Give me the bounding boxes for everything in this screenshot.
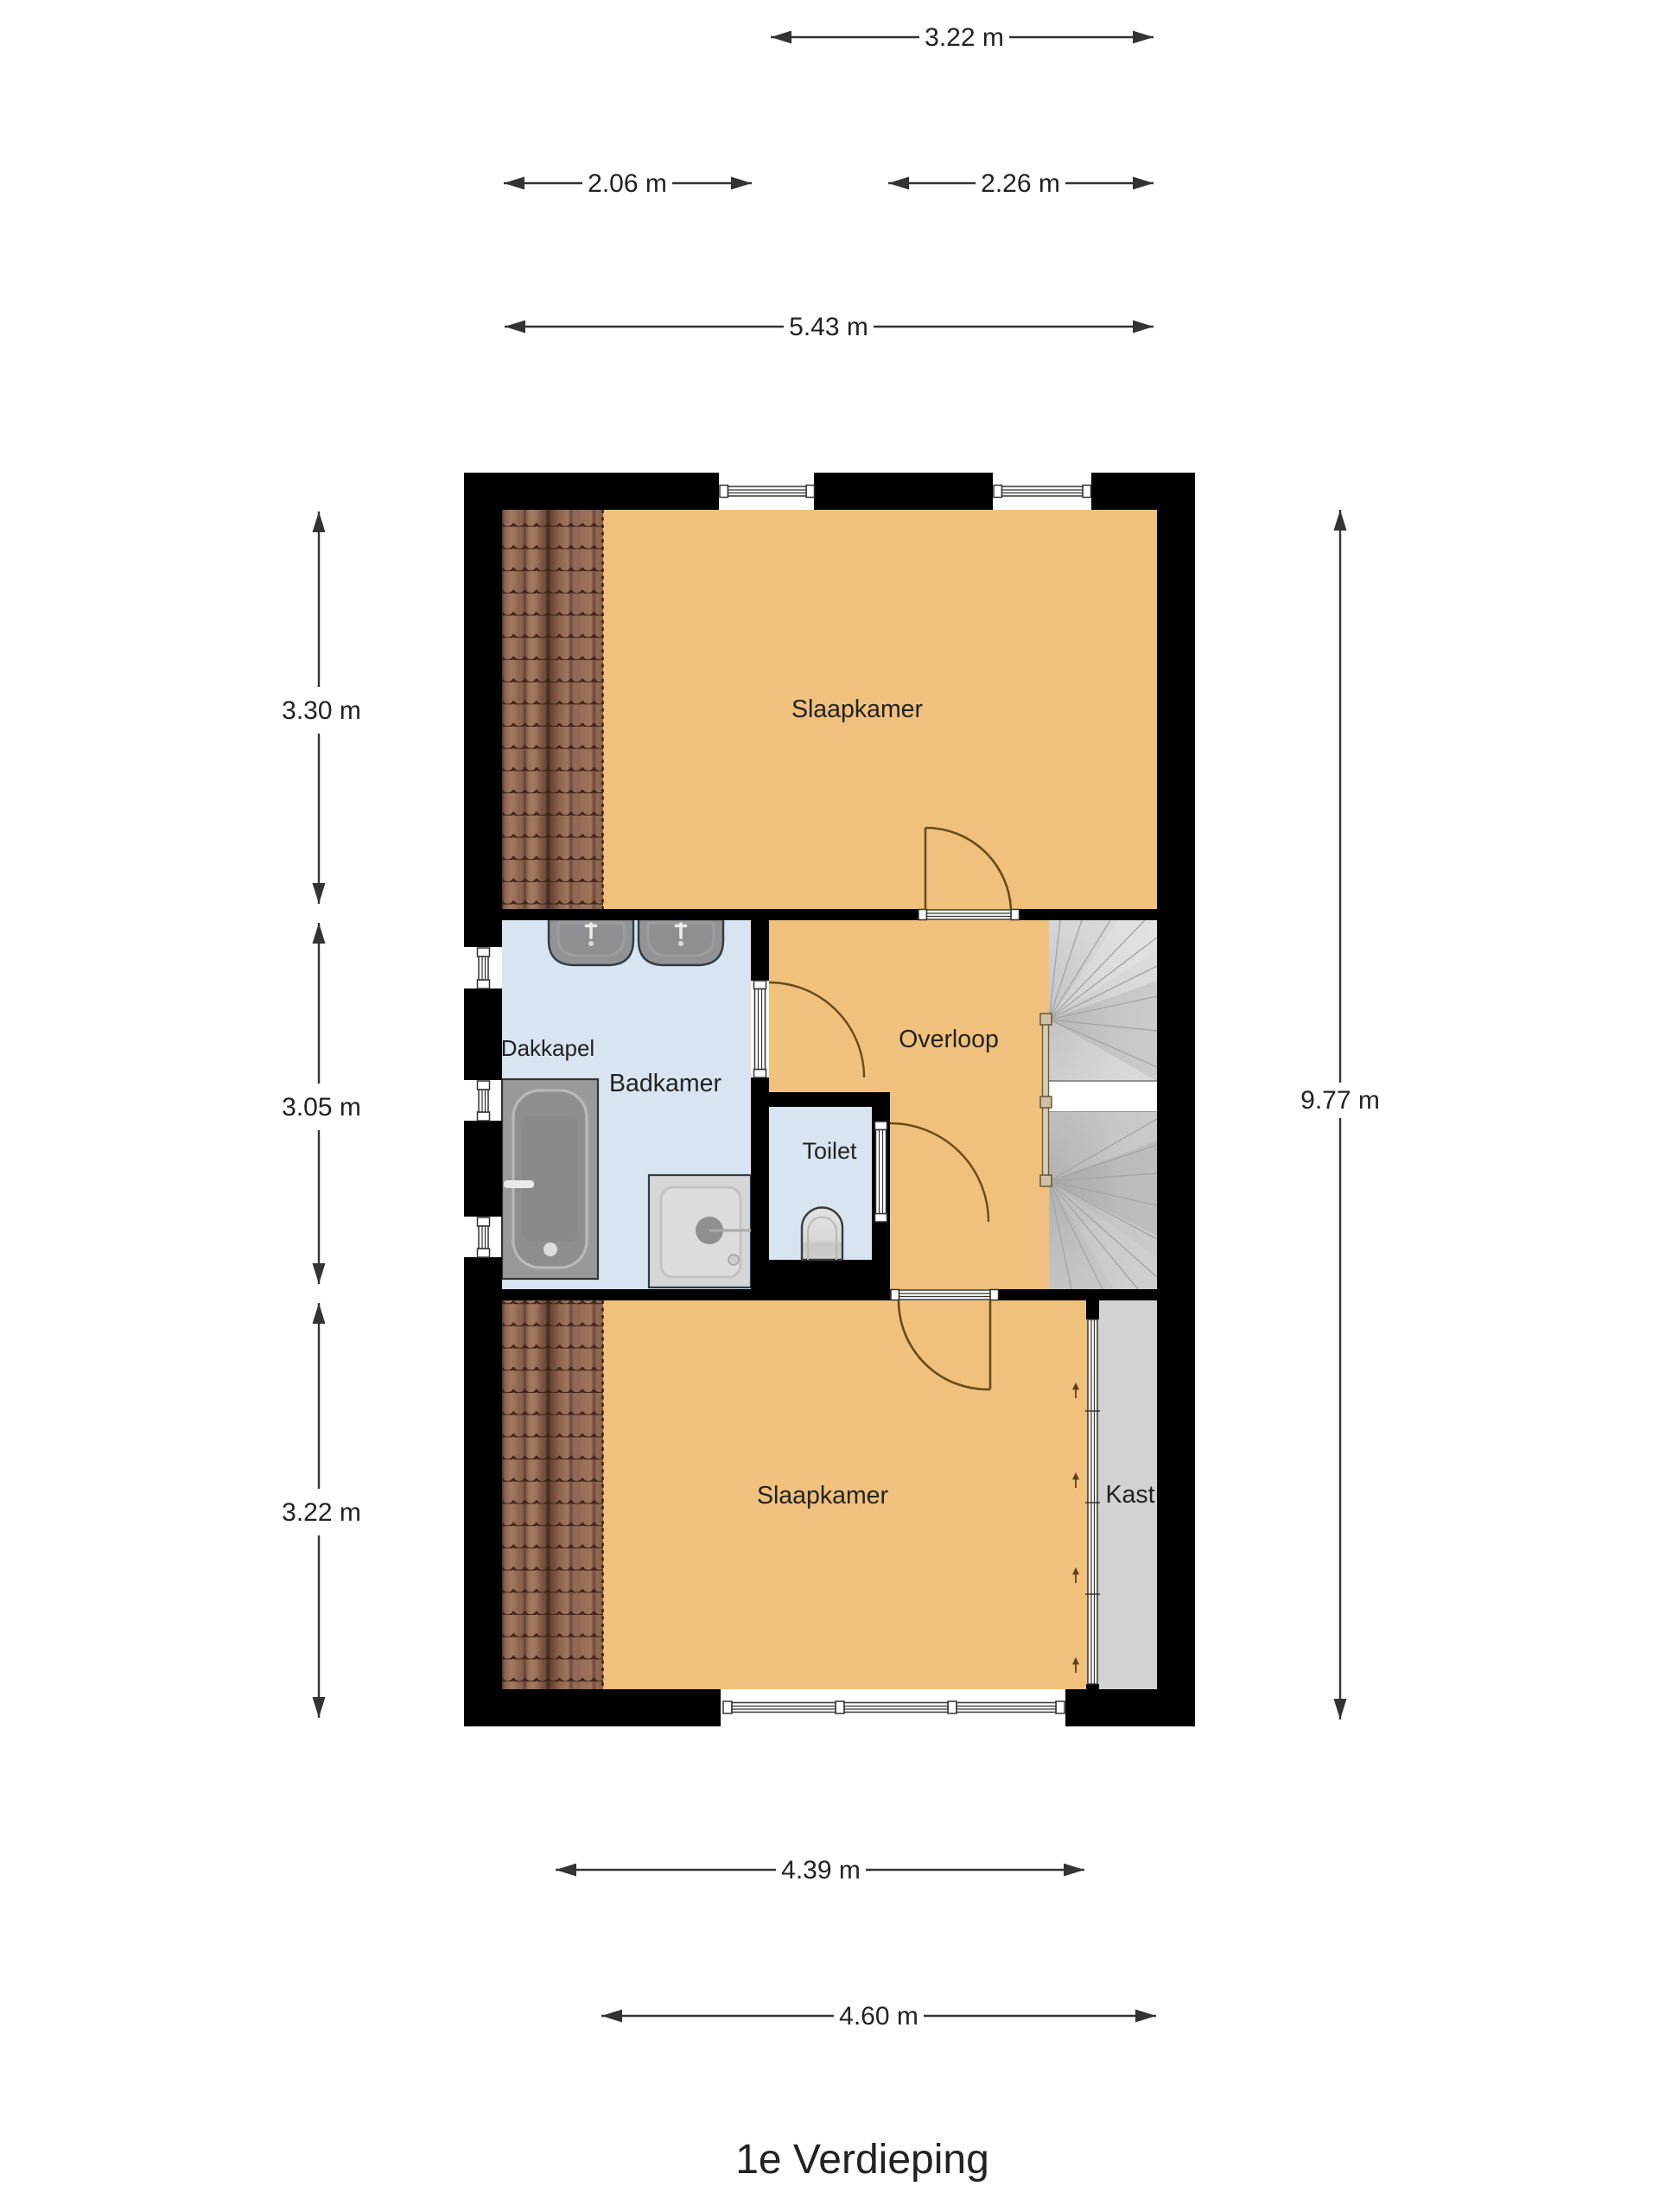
svg-text:1e Verdieping: 1e Verdieping [735, 2137, 989, 2183]
svg-text:3.22 m: 3.22 m [282, 1498, 361, 1527]
svg-text:3.22 m: 3.22 m [925, 23, 1004, 52]
svg-text:4.60 m: 4.60 m [839, 2002, 918, 2031]
svg-text:3.05 m: 3.05 m [282, 1093, 361, 1122]
svg-text:9.77 m: 9.77 m [1300, 1086, 1380, 1115]
svg-text:Slaapkamer: Slaapkamer [757, 1482, 889, 1510]
svg-text:Badkamer: Badkamer [609, 1070, 721, 1097]
svg-text:2.26 m: 2.26 m [981, 169, 1060, 198]
svg-text:Overloop: Overloop [899, 1026, 999, 1053]
svg-text:5.43 m: 5.43 m [789, 313, 868, 341]
svg-text:4.39 m: 4.39 m [781, 1856, 861, 1885]
svg-text:Kast: Kast [1105, 1481, 1154, 1509]
svg-text:2.06 m: 2.06 m [588, 169, 667, 198]
svg-text:Slaapkamer: Slaapkamer [791, 696, 924, 723]
svg-text:3.30 m: 3.30 m [282, 696, 361, 725]
svg-text:Toilet: Toilet [802, 1138, 857, 1164]
svg-text:Dakkapel: Dakkapel [501, 1035, 594, 1061]
